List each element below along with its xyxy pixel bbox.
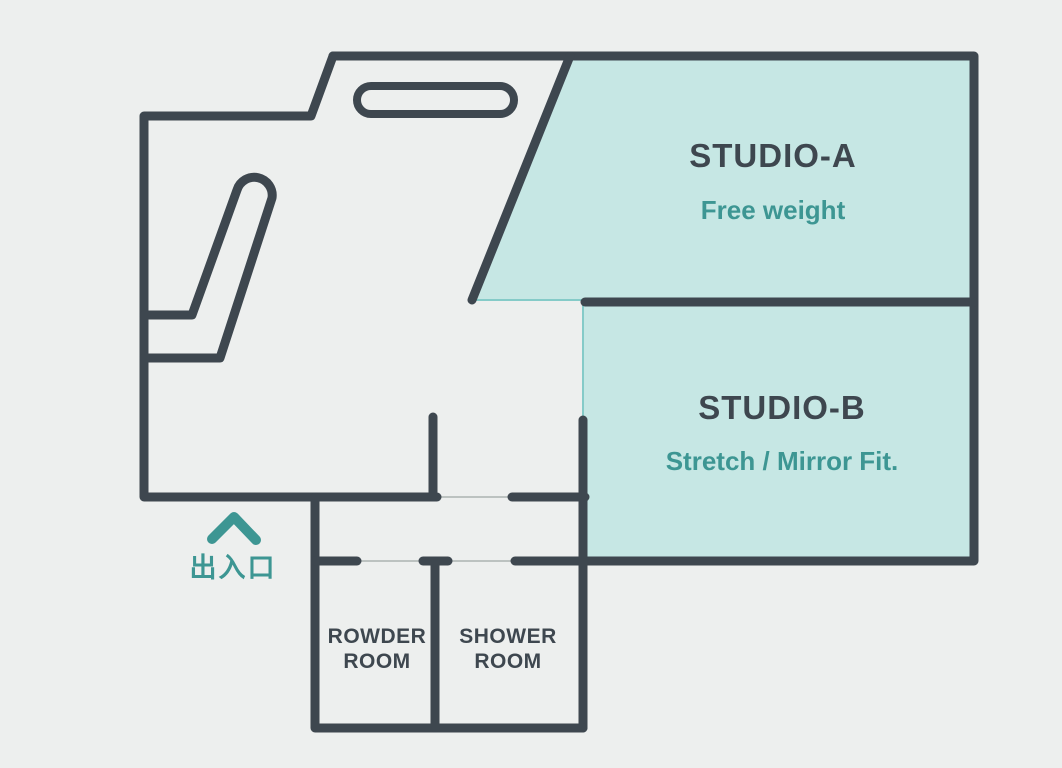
entrance-label: 出入口 [190, 553, 277, 583]
shower-room-label-line2: ROOM [474, 650, 541, 673]
studio-a-subtitle: Free weight [701, 195, 846, 225]
floor-plan: 出入口 STUDIO-A Free weight STUDIO-B Stretc… [0, 0, 1062, 768]
chevron-up-icon [212, 517, 256, 540]
studio-a-label: STUDIO-A [689, 137, 857, 174]
rowder-room-label-line2: ROOM [343, 650, 410, 673]
floor-plan-canvas: 出入口 STUDIO-A Free weight STUDIO-B Stretc… [0, 0, 1062, 768]
rowder-room-label-line1: ROWDER [328, 625, 427, 648]
studio-b-label: STUDIO-B [698, 389, 866, 426]
studio-b-area [583, 301, 974, 557]
counter-fixture [357, 86, 514, 114]
studio-b-subtitle: Stretch / Mirror Fit. [666, 446, 899, 476]
shower-room-label-line1: SHOWER [459, 625, 557, 648]
wall-rooms-left-bottom [315, 497, 583, 728]
stairs-fixture [144, 177, 272, 358]
studio-a-area [472, 56, 974, 300]
wall-outer-left [144, 56, 437, 497]
